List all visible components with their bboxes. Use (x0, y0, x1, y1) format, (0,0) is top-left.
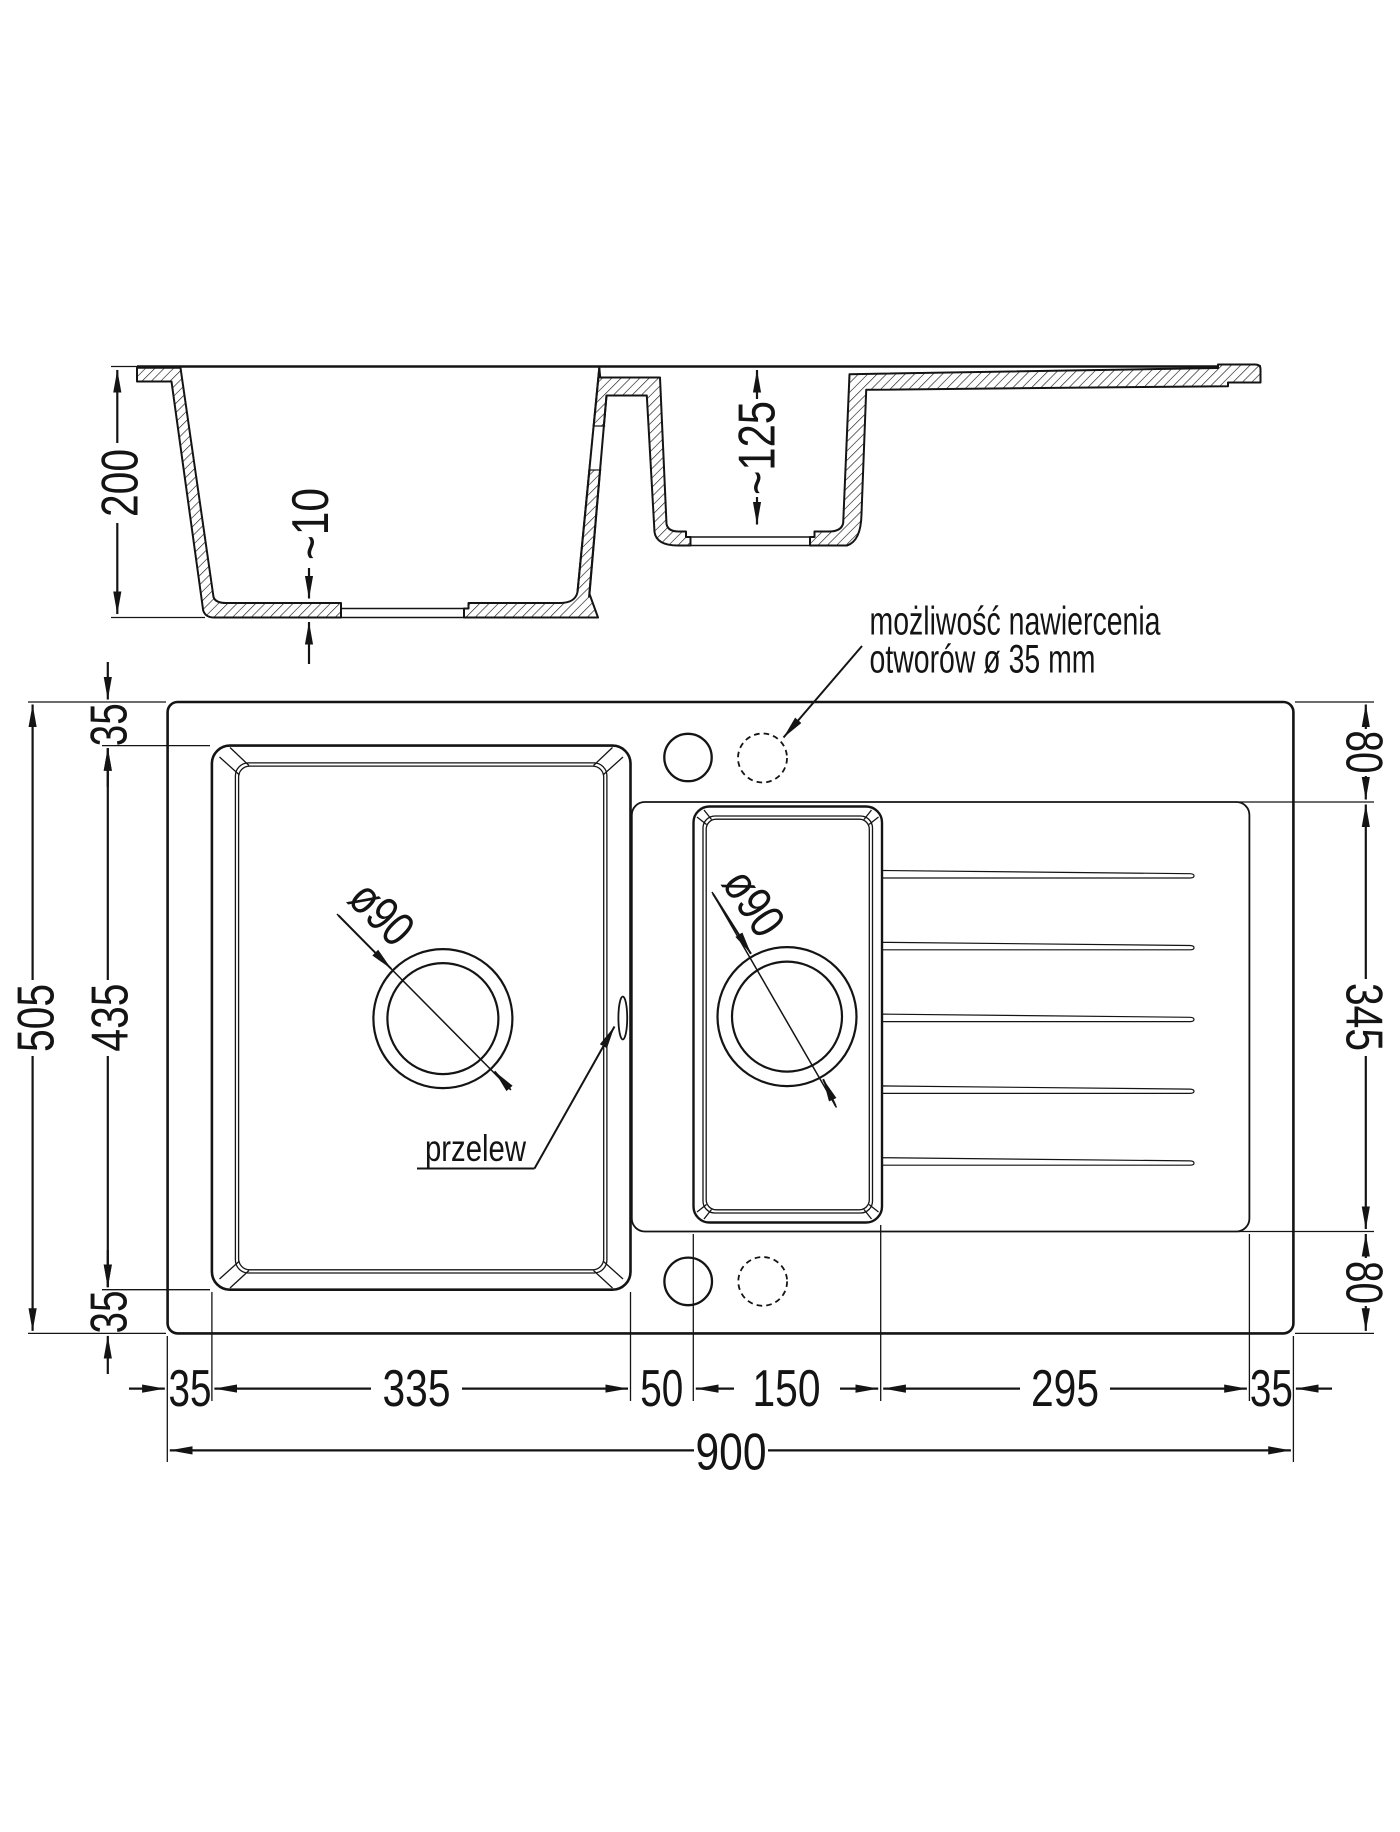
svg-text:otworów ø 35 mm: otworów ø 35 mm (870, 638, 1096, 682)
svg-text:200: 200 (91, 449, 149, 517)
svg-text:345: 345 (1335, 983, 1393, 1051)
svg-text:900: 900 (696, 1424, 767, 1482)
svg-text:335: 335 (383, 1360, 451, 1418)
svg-text:150: 150 (753, 1360, 821, 1418)
svg-text:35: 35 (81, 703, 139, 746)
svg-text:80: 80 (1335, 1261, 1393, 1304)
svg-text:~125: ~125 (729, 401, 787, 495)
svg-text:35: 35 (169, 1360, 212, 1418)
svg-text:~10: ~10 (282, 488, 340, 560)
svg-text:435: 435 (82, 984, 140, 1052)
svg-text:505: 505 (7, 984, 65, 1052)
svg-text:295: 295 (1031, 1360, 1099, 1418)
svg-text:50: 50 (640, 1360, 683, 1418)
svg-text:przelew: przelew (425, 1128, 526, 1169)
svg-text:80: 80 (1335, 731, 1393, 774)
svg-text:35: 35 (81, 1291, 139, 1334)
svg-text:35: 35 (1250, 1360, 1293, 1418)
